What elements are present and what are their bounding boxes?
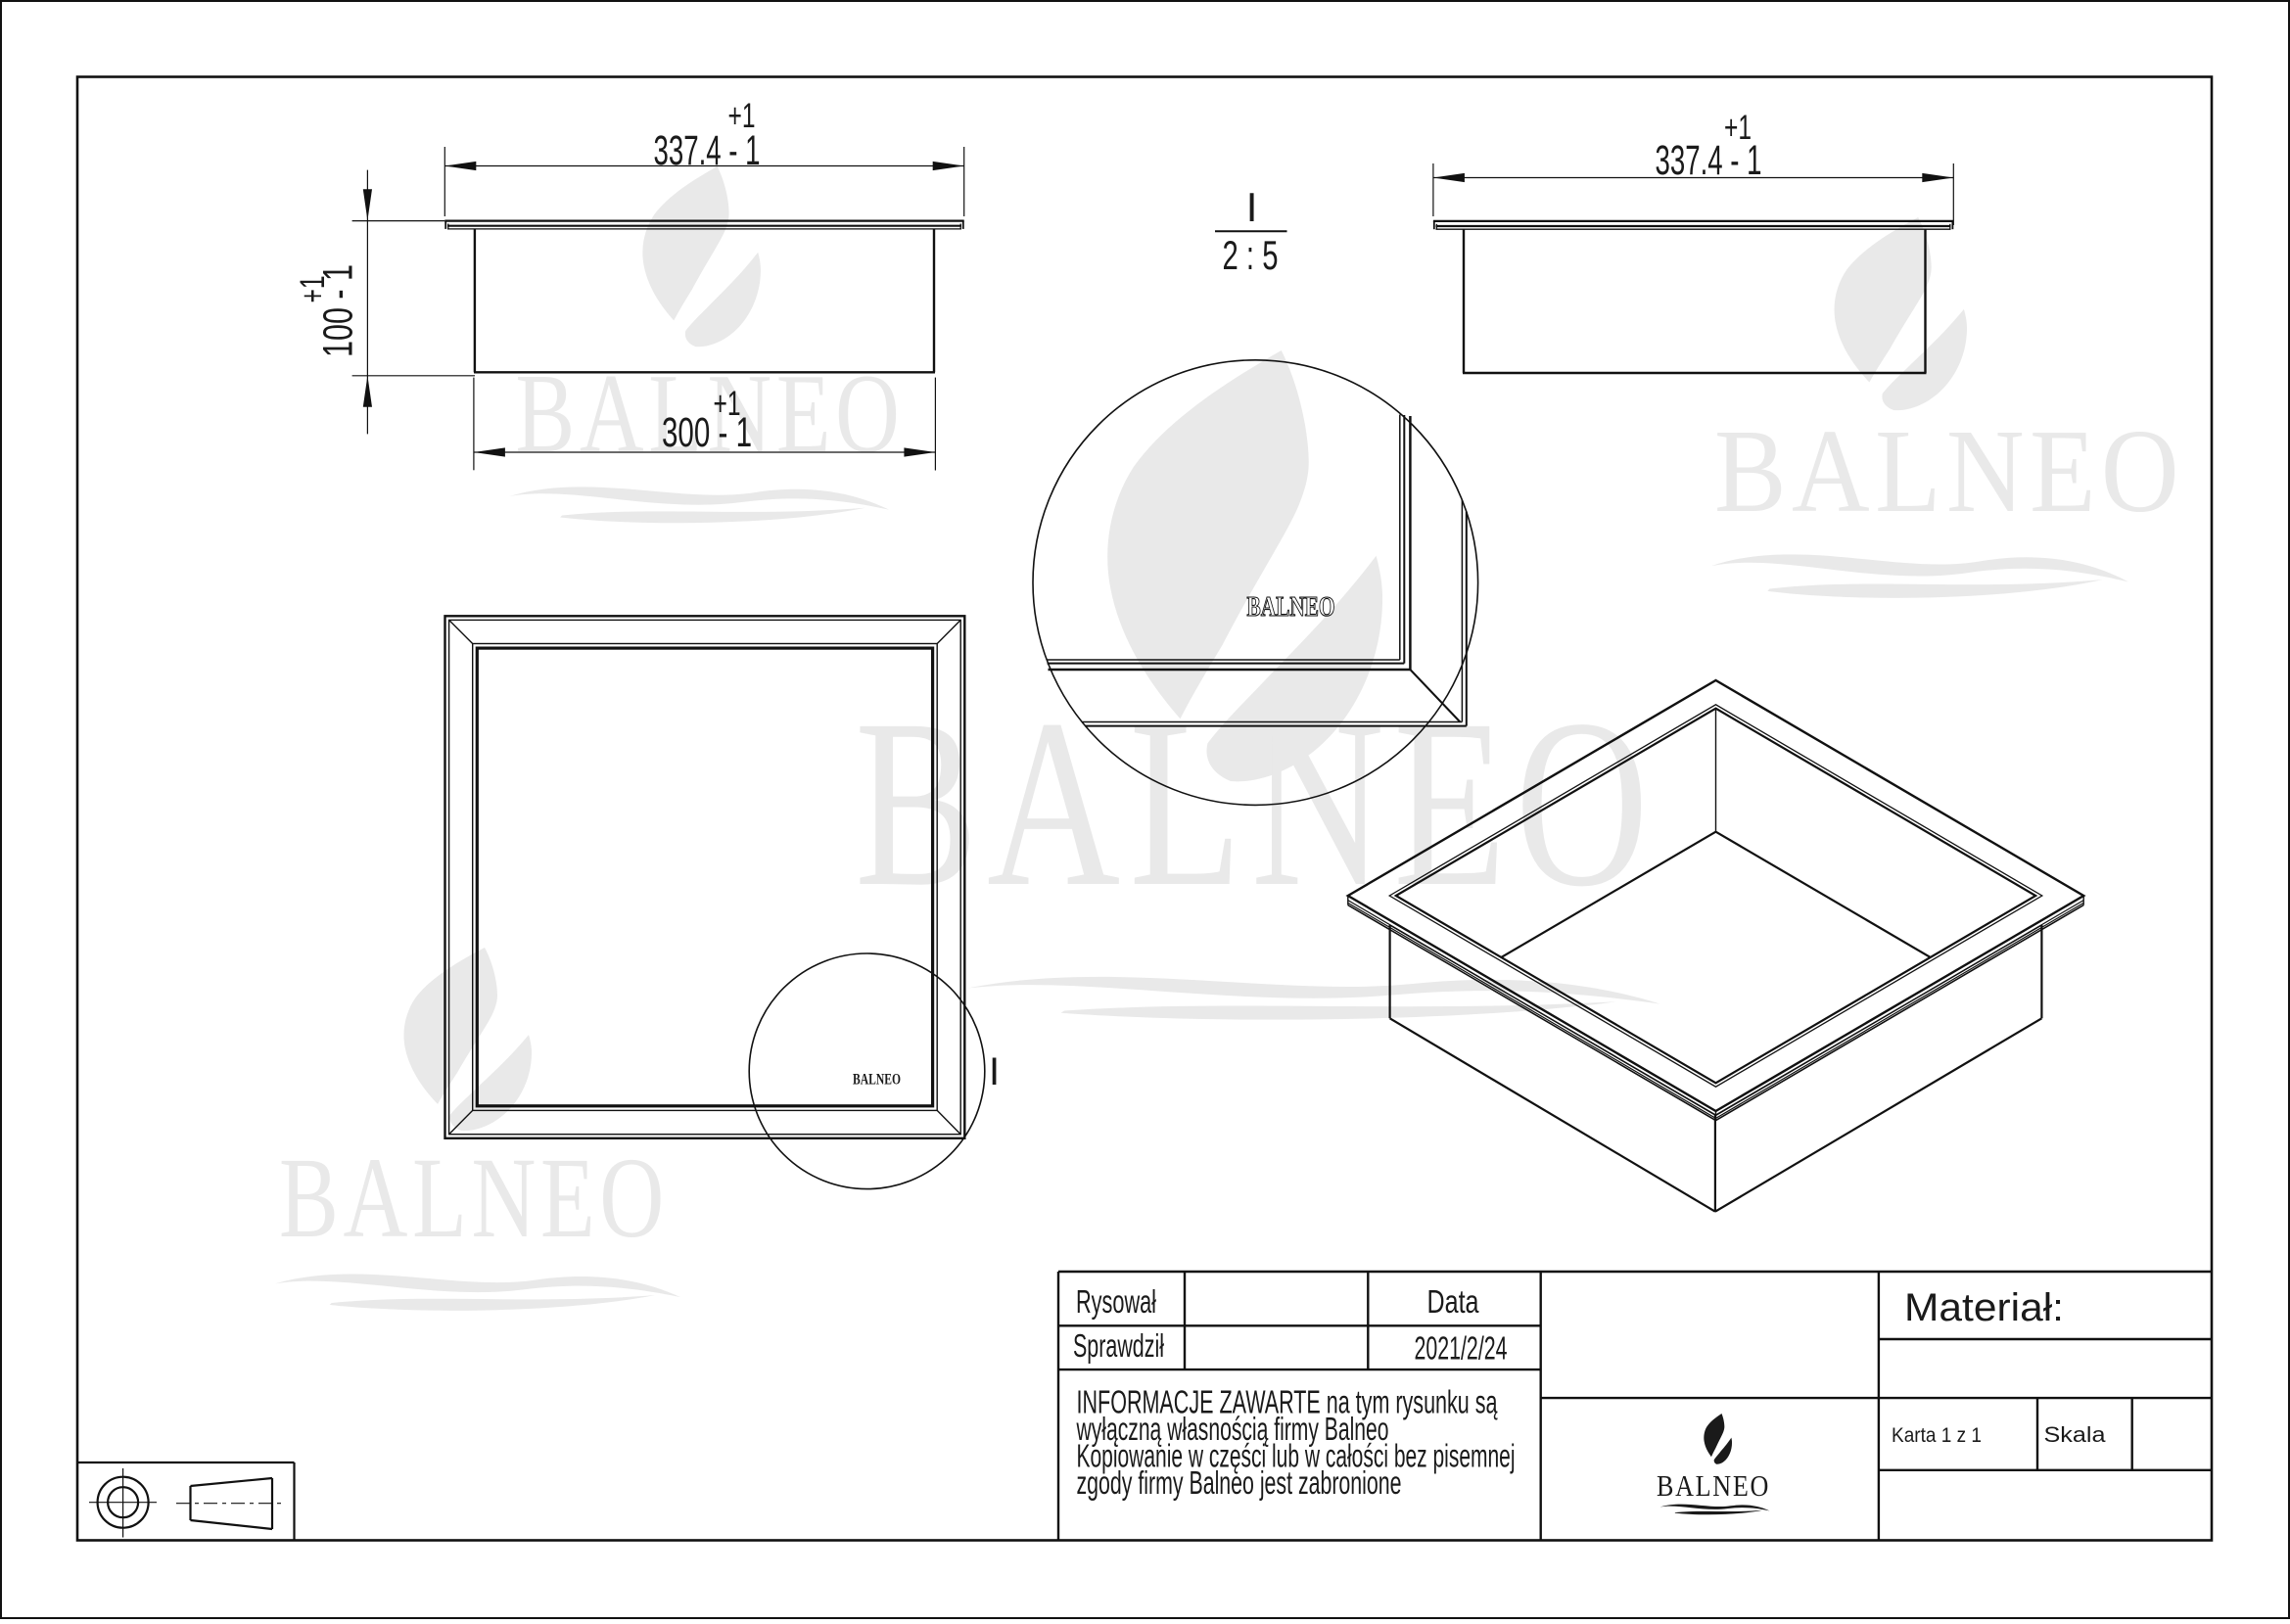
svg-text:Data: Data: [1427, 1283, 1479, 1320]
svg-text:BALNEO: BALNEO: [1714, 405, 2184, 537]
svg-text:I: I: [989, 1050, 1000, 1093]
svg-text:337.4 - 1: 337.4 - 1: [1656, 137, 1762, 184]
svg-text:2 : 5: 2 : 5: [1223, 232, 1279, 278]
svg-text:BALNEO: BALNEO: [853, 1072, 901, 1089]
svg-text:Karta 1 z 1: Karta 1 z 1: [1892, 1424, 1982, 1447]
svg-text:BALNEO: BALNEO: [1247, 592, 1335, 623]
svg-text:2021/2/24: 2021/2/24: [1415, 1330, 1508, 1367]
svg-text:BALNEO: BALNEO: [279, 1134, 669, 1262]
svg-text:100 - 1: 100 - 1: [315, 264, 362, 357]
svg-text:Rysował: Rysował: [1076, 1283, 1156, 1320]
svg-text:zgody firmy Balneo jest zabron: zgody firmy Balneo jest zabronione: [1077, 1464, 1402, 1501]
svg-text:I: I: [1246, 184, 1258, 230]
svg-text:Sprawdził: Sprawdził: [1073, 1327, 1164, 1364]
svg-text:BALNEO: BALNEO: [855, 671, 1658, 937]
svg-text:Skala: Skala: [2044, 1422, 2107, 1447]
svg-text:300 - 1: 300 - 1: [662, 409, 752, 456]
svg-text:BALNEO: BALNEO: [1657, 1468, 1770, 1503]
svg-text:Materiał:: Materiał:: [1904, 1286, 2064, 1329]
svg-text:337.4 - 1: 337.4 - 1: [654, 127, 761, 174]
